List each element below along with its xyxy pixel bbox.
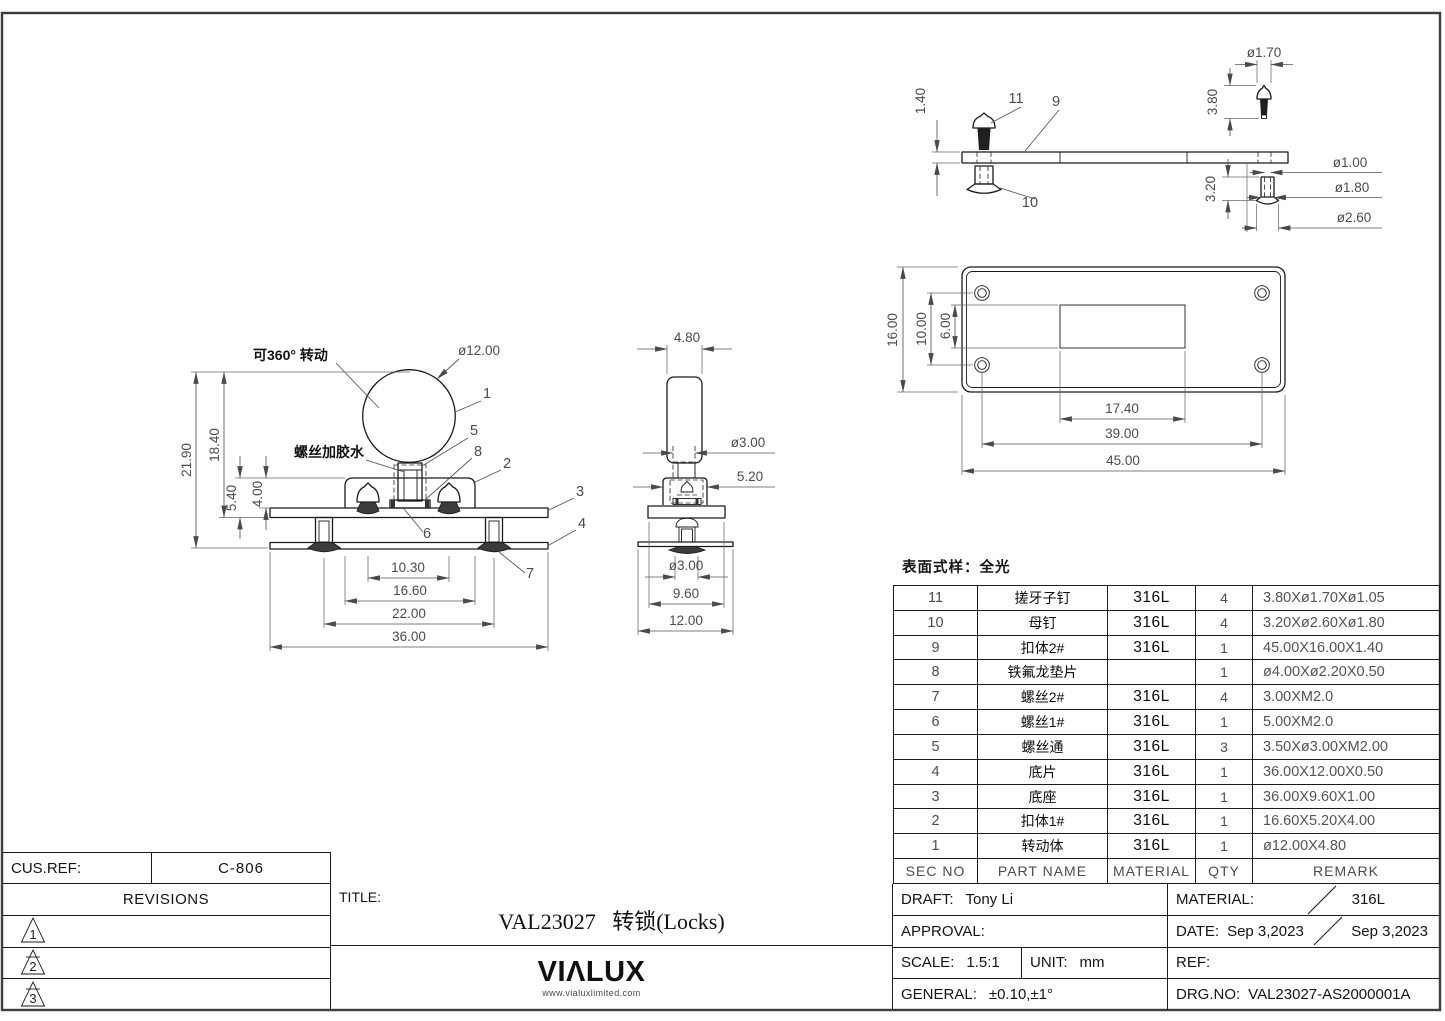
- table-row: 5 螺丝通 316L 3 3.50Xø3.00XM2.00: [894, 734, 1439, 759]
- plate-top-view: 16.00 10.00 6.00 17.40 39.00 45.00: [885, 267, 1285, 475]
- bom-part-name: 母钉: [977, 611, 1107, 635]
- dim-label-dia1-00: ø1.00: [1333, 155, 1368, 170]
- general-value: ±0.10,±1°: [989, 986, 1053, 1003]
- corner-hole-inner: [978, 361, 987, 370]
- dim-label-16-60: 16.60: [393, 583, 427, 598]
- nut-detail-hole: [1265, 177, 1271, 199]
- dim-label-4-80: 4.80: [674, 330, 700, 345]
- table-row: 1 转动体 316L 1 ø12.00X4.80: [894, 833, 1439, 858]
- revision-row: [2, 948, 330, 980]
- bom-part-name: 螺丝通: [977, 735, 1107, 759]
- extension-line: [1257, 60, 1271, 83]
- bom-sec: 4: [894, 760, 977, 784]
- bom-sec: 8: [894, 660, 977, 684]
- corner-hole-inner: [1258, 289, 1267, 298]
- bom-sec: 7: [894, 685, 977, 709]
- approval-label: APPROVAL:: [901, 923, 985, 940]
- callout-4: 4: [578, 516, 586, 532]
- bom-sec: 9: [894, 636, 977, 660]
- header-qty: QTY: [1195, 859, 1252, 883]
- bom-remark: 45.00X16.00X1.40: [1252, 636, 1439, 660]
- drg-no-value: VAL23027-AS2000001A: [1248, 986, 1410, 1003]
- surface-finish-note: 表面式样：全光: [902, 556, 1011, 577]
- bom-part-name: 搓牙子钉: [977, 586, 1107, 610]
- leader-line: [404, 509, 423, 532]
- bom-material: 316L: [1107, 785, 1195, 809]
- bom-qty: 3: [1195, 735, 1252, 759]
- glue-annotation: 螺丝加胶水: [294, 444, 365, 460]
- bom-qty: 1: [1195, 785, 1252, 809]
- extension-line: [932, 152, 960, 163]
- leader-line: [336, 363, 379, 408]
- dim-label-22-00: 22.00: [392, 606, 426, 621]
- vialux-logo-url: www.vialuxlimited.com: [542, 988, 640, 998]
- plate-geometry: [962, 267, 1285, 392]
- bom-sec: 2: [894, 809, 977, 833]
- bom-material: 316L: [1107, 760, 1195, 784]
- top-screw-left: [357, 483, 379, 502]
- screw-core: [682, 529, 693, 542]
- leader-line: [437, 359, 459, 379]
- side-view: 4.80 ø3.00 5.20 ø3.00 9.60 12.00: [633, 330, 775, 635]
- title-area: TITLE: VAL23027 转锁(Locks): [331, 884, 892, 946]
- revisions-header: REVISIONS: [2, 884, 330, 916]
- bom-sec: 6: [894, 710, 977, 734]
- revision-row: [2, 916, 330, 948]
- bom-remark: 36.00X12.00X0.50: [1252, 760, 1439, 784]
- drawing-title: VAL23027 转锁(Locks): [331, 904, 892, 936]
- dim-label-3-20: 3.20: [1203, 176, 1218, 202]
- bom-remark: 5.00XM2.0: [1252, 710, 1439, 734]
- latch-bar-geometry: [962, 113, 1288, 193]
- dim-label-1-40: 1.40: [913, 88, 928, 114]
- date-cell: DATE: Sep 3,2023 Sep 3,2023: [1168, 916, 1440, 947]
- dim-label-dia3-top: ø3.00: [731, 435, 766, 450]
- bom-sec: 11: [894, 586, 977, 610]
- rotating-knob-circle: [363, 370, 456, 463]
- scale-cell: SCALE: 1.5:1: [893, 948, 1022, 979]
- general-label: GENERAL:: [901, 986, 977, 1003]
- callout-3: 3: [576, 484, 584, 500]
- bom-material: 316L: [1107, 710, 1195, 734]
- bom-remark: 3.50Xø3.00XM2.00: [1252, 735, 1439, 759]
- bom-part-name: 转动体: [977, 834, 1107, 858]
- center-screw-core: [404, 470, 417, 500]
- table-row: 3 底座 316L 1 36.00X9.60X1.00: [894, 784, 1439, 809]
- ref-cell: REF:: [1168, 948, 1440, 979]
- bom-qty: 4: [1195, 611, 1252, 635]
- bom-part-name: 螺丝1#: [977, 710, 1107, 734]
- plate-inner-outline: [967, 272, 1281, 388]
- cus-ref-value: C-806: [152, 853, 330, 883]
- header-material: MATERIAL: [1107, 859, 1195, 883]
- bom-sec: 3: [894, 785, 977, 809]
- dim-label-18-40: 18.40: [207, 428, 222, 462]
- pin-detail-tip: [1262, 115, 1267, 119]
- unit-value: mm: [1080, 954, 1105, 971]
- bom-sec: 5: [894, 735, 977, 759]
- nut-skirt: [967, 184, 1001, 193]
- front-view-leaders: [336, 359, 576, 573]
- side-view-dimensions: [633, 345, 775, 635]
- pin-head: [973, 113, 995, 128]
- bom-material: 316L: [1107, 586, 1195, 610]
- bom-qty: 4: [1195, 586, 1252, 610]
- screw-skirt: [669, 547, 705, 554]
- bom-qty: 4: [1195, 685, 1252, 709]
- dim-label-dia12: ø12.00: [458, 343, 500, 358]
- extension-line: [667, 345, 702, 374]
- header-part-name: PART NAME: [977, 859, 1107, 883]
- bom-part-name: 螺丝2#: [977, 685, 1107, 709]
- draft-value: Tony Li: [966, 891, 1014, 908]
- leader-line: [473, 470, 501, 483]
- scale-value: 1.5:1: [966, 954, 999, 971]
- nut-hidden-hole: [980, 166, 988, 184]
- dim-label-17-40: 17.40: [1105, 401, 1139, 416]
- material-cell: MATERIAL: 316L: [1168, 884, 1440, 915]
- pin-detail: [1224, 60, 1293, 136]
- bom-material: 316L: [1107, 834, 1195, 858]
- title-block-row: SCALE: 1.5:1 UNIT: mm REF:: [893, 948, 1440, 980]
- material-value: 316L: [1352, 891, 1385, 908]
- table-header-row: SEC NO PART NAME MATERIAL QTY REMARK: [894, 858, 1439, 883]
- front-view: 可360° 转动 螺丝加胶水 ø12.00 1 5 8 2 3 4 6 7 21…: [179, 343, 586, 651]
- leader-line: [991, 107, 1021, 123]
- table-row: 7 螺丝2# 316L 4 3.00XM2.0: [894, 684, 1439, 709]
- bom-remark: 3.20Xø2.60Xø1.80: [1252, 611, 1439, 635]
- title-block-right: DRAFT: Tony Li MATERIAL: 316L APPROVAL: …: [893, 884, 1440, 1010]
- bom-material: 316L: [1107, 636, 1195, 660]
- unit-cell: UNIT: mm: [1022, 948, 1168, 979]
- ref-label: REF:: [1176, 954, 1210, 971]
- title-block-row: DRAFT: Tony Li MATERIAL: 316L: [893, 884, 1440, 916]
- callout-9: 9: [1052, 94, 1060, 110]
- leader-line: [499, 552, 525, 573]
- header-remark: REMARK: [1252, 859, 1439, 883]
- dim-label-16-00: 16.00: [885, 313, 900, 347]
- bom-qty: 1: [1195, 660, 1252, 684]
- cus-ref-label: CUS.REF:: [2, 853, 152, 883]
- bom-part-name: 铁氟龙垫片: [977, 660, 1107, 684]
- dim-label-10-00: 10.00: [914, 312, 929, 346]
- leader-line: [422, 438, 468, 466]
- hidden-screw-lines: [673, 446, 695, 462]
- latch-bar-view: 1.40 11 9 10 ø1.70 3.80 3.20 ø1.00 ø1.80…: [913, 45, 1382, 232]
- leader-line: [549, 498, 574, 510]
- table-row: 6 螺丝1# 316L 1 5.00XM2.0: [894, 709, 1439, 734]
- table-row: 2 扣体1# 316L 1 16.60X5.20X4.00: [894, 808, 1439, 833]
- inner-flange-ends: [677, 499, 697, 505]
- callout-2: 2: [503, 456, 511, 472]
- corner-hole: [1255, 358, 1270, 373]
- table-row: 10 母钉 316L 4 3.20Xø2.60Xø1.80: [894, 610, 1439, 635]
- corner-hole: [975, 358, 990, 373]
- drg-no-label: DRG.NO:: [1176, 986, 1240, 1003]
- leader-line: [1025, 110, 1059, 151]
- vialux-logo: VIΛLUX: [538, 958, 646, 987]
- dim-label-12-00: 12.00: [669, 613, 703, 628]
- bom-material: 316L: [1107, 685, 1195, 709]
- bom-part-name: 扣体2#: [977, 636, 1107, 660]
- material-label: MATERIAL:: [1176, 891, 1254, 908]
- base-plate-side: [648, 506, 725, 518]
- bom-qty: 1: [1195, 760, 1252, 784]
- hidden-neck: [673, 462, 695, 478]
- unit-label: UNIT:: [1030, 954, 1068, 971]
- bom-material: 316L: [1107, 809, 1195, 833]
- bom-remark: 3.80Xø1.70Xø1.05: [1252, 586, 1439, 610]
- extension-line: [1257, 204, 1279, 231]
- bom-sec: 1: [894, 834, 977, 858]
- slot-cutout: [1060, 305, 1185, 348]
- bom-qty: 1: [1195, 710, 1252, 734]
- dim-label-5-20: 5.20: [737, 469, 763, 484]
- top-screw-right-skirt: [438, 502, 460, 514]
- bottom-screw-left-core: [319, 521, 329, 542]
- pin-detail-shaft: [1260, 99, 1268, 115]
- table-row: 9 扣体2# 316L 1 45.00X16.00X1.40: [894, 635, 1439, 660]
- callout-5: 5: [470, 423, 478, 439]
- dim-label-dia3-bottom: ø3.00: [669, 558, 704, 573]
- dim-label-3-80: 3.80: [1205, 89, 1220, 115]
- nut-detail-skirt: [1257, 197, 1279, 204]
- bottom-sheet-side: [638, 542, 733, 547]
- callout-1: 1: [483, 386, 491, 402]
- draft-cell: DRAFT: Tony Li: [893, 884, 1168, 915]
- dim-label-4-00: 4.00: [250, 481, 265, 507]
- plate-dimensions: [897, 267, 1285, 475]
- dim-label-9-60: 9.60: [673, 586, 699, 601]
- bom-table: 11 搓牙子钉 316L 4 3.80Xø1.70Xø1.05 10 母钉 31…: [893, 585, 1440, 884]
- header-sec-no: SEC NO: [894, 859, 977, 883]
- leader-line: [455, 401, 481, 412]
- title-label: TITLE:: [339, 889, 381, 905]
- revisions-block: REVISIONS: [2, 884, 331, 1010]
- base-plate: [270, 508, 548, 518]
- bar-hidden-holes: [977, 152, 1271, 163]
- callout-8: 8: [474, 444, 482, 460]
- dim-label-dia1-70: ø1.70: [1247, 45, 1282, 60]
- inner-screw-head: [681, 482, 693, 493]
- bom-part-name: 扣体1#: [977, 809, 1107, 833]
- bottom-screw-right-core: [489, 521, 499, 542]
- bom-material: 316L: [1107, 611, 1195, 635]
- callout-7: 7: [526, 566, 534, 582]
- bottom-screw-left-skirt: [308, 543, 341, 552]
- corner-hole-inner: [978, 289, 987, 298]
- dim-label-10-30: 10.30: [391, 560, 425, 575]
- table-row: 4 底片 316L 1 36.00X12.00X0.50: [894, 759, 1439, 784]
- dim-label-5-40: 5.40: [224, 485, 239, 511]
- table-row: 11 搓牙子钉 316L 4 3.80Xø1.70Xø1.05: [894, 586, 1439, 610]
- callout-11: 11: [1008, 91, 1023, 107]
- date-label: DATE:: [1176, 923, 1219, 940]
- nut-detail-body: [1261, 177, 1274, 197]
- draft-label: DRAFT:: [901, 891, 954, 908]
- title-block-row: APPROVAL: DATE: Sep 3,2023 Sep 3,2023: [893, 916, 1440, 948]
- table-row: 8 铁氟龙垫片 1 ø4.00Xø2.20X0.50: [894, 659, 1439, 684]
- extension-line: [951, 305, 1058, 348]
- date-value-2: Sep 3,2023: [1351, 923, 1428, 940]
- dim-label-45-00: 45.00: [1106, 453, 1140, 468]
- dim-label-dia1-80: ø1.80: [1335, 180, 1370, 195]
- nut-body: [975, 166, 993, 184]
- revision-row: [2, 979, 330, 1010]
- dim-label-36-00: 36.00: [392, 629, 426, 644]
- approval-cell: APPROVAL:: [893, 916, 1168, 947]
- top-screw-left-skirt: [357, 502, 379, 514]
- dim-label-6-00: 6.00: [938, 313, 953, 339]
- bom-material: 316L: [1107, 735, 1195, 759]
- bom-qty: 1: [1195, 636, 1252, 660]
- extension-line: [1224, 86, 1259, 119]
- leader-line: [425, 458, 472, 500]
- corner-hole: [1255, 286, 1270, 301]
- dim-label-21-90: 21.90: [179, 443, 194, 477]
- cus-ref-block: CUS.REF: C-806: [2, 852, 331, 884]
- extension-line: [1222, 177, 1259, 201]
- title-block-row: GENERAL: ±0.10,±1° DRG.NO: VAL23027-AS20…: [893, 979, 1440, 1010]
- bom-remark: ø12.00X4.80: [1252, 834, 1439, 858]
- bar-segment-lines: [1060, 152, 1187, 163]
- general-cell: GENERAL: ±0.10,±1°: [893, 979, 1168, 1010]
- dim-label-39-00: 39.00: [1105, 426, 1139, 441]
- knob-side: [667, 377, 702, 463]
- plate-outline: [962, 267, 1285, 392]
- logo-area: VIΛLUX www.vialuxlimited.com: [331, 946, 892, 1010]
- date-value: Sep 3,2023: [1227, 923, 1304, 940]
- center-screw: [398, 463, 422, 501]
- bom-sec: 10: [894, 611, 977, 635]
- leader-line: [549, 530, 576, 545]
- bottom-screw-right-skirt: [478, 543, 511, 552]
- bom-qty: 1: [1195, 834, 1252, 858]
- callout-6: 6: [423, 526, 431, 542]
- dim-label-dia2-60: ø2.60: [1337, 210, 1372, 225]
- bom-remark: 3.00XM2.0: [1252, 685, 1439, 709]
- rotate-annotation: 可360° 转动: [253, 347, 328, 363]
- bom-remark: ø4.00Xø2.20X0.50: [1252, 660, 1439, 684]
- callout-10: 10: [1022, 195, 1038, 211]
- bom-material: [1107, 660, 1195, 684]
- side-view-geometry: [638, 377, 733, 554]
- latch-bar: [962, 152, 1288, 163]
- title-area-block: TITLE: VAL23027 转锁(Locks) VIΛLUX www.via…: [331, 884, 893, 1010]
- corner-hole-inner: [1258, 361, 1267, 370]
- corner-hole: [975, 286, 990, 301]
- bom-qty: 1: [1195, 809, 1252, 833]
- bom-part-name: 底座: [977, 785, 1107, 809]
- scale-label: SCALE:: [901, 954, 954, 971]
- bom-remark: 36.00X9.60X1.00: [1252, 785, 1439, 809]
- screw-shoulder: [676, 518, 698, 527]
- pin-shaft: [978, 128, 991, 150]
- bom-remark: 16.60X5.20X4.00: [1252, 809, 1439, 833]
- drg-no-cell: DRG.NO: VAL23027-AS2000001A: [1168, 979, 1440, 1010]
- bom-part-name: 底片: [977, 760, 1107, 784]
- pin-detail-head: [1257, 86, 1271, 100]
- neck-lines: [678, 462, 695, 478]
